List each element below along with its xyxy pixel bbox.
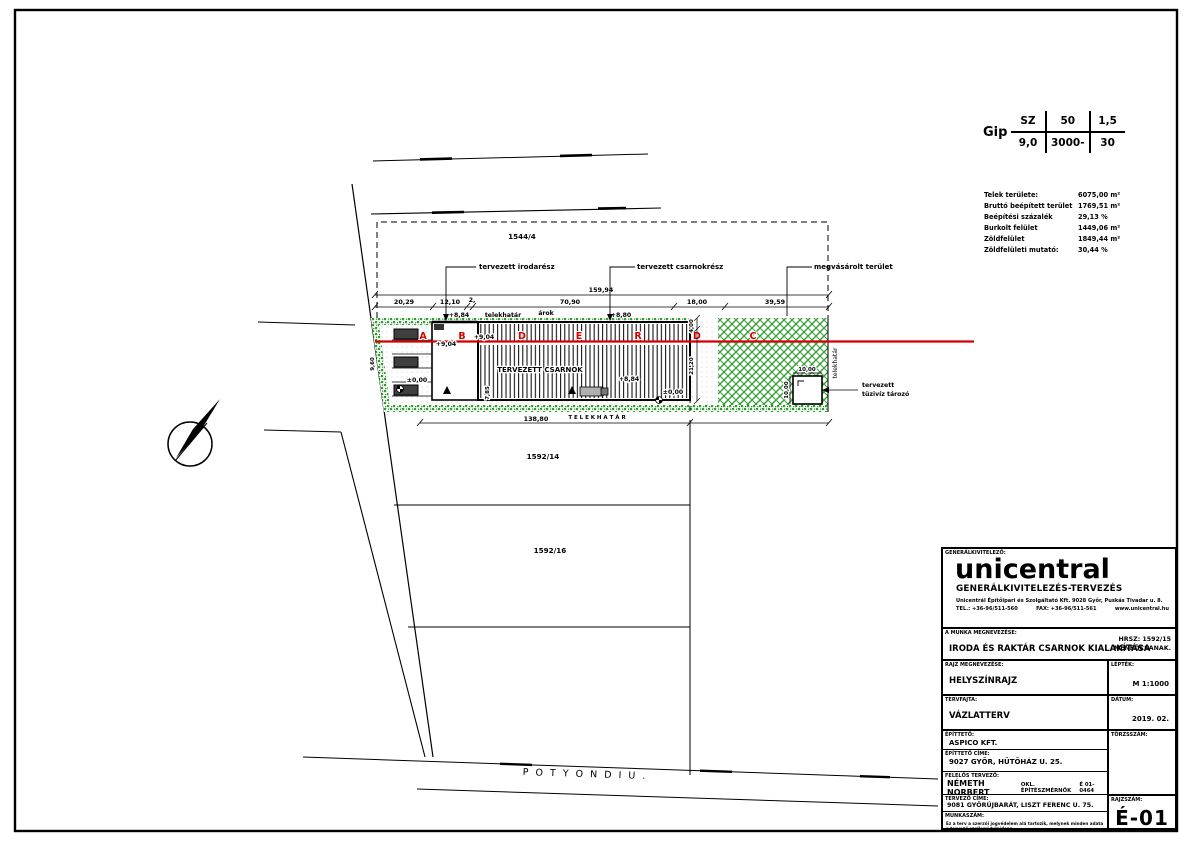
zone-letter: C <box>750 331 757 342</box>
level-label: +8,84 <box>449 312 470 319</box>
benchmark-symbol <box>397 386 404 393</box>
level-label: ±0,00 <box>663 389 684 396</box>
designer-address-label: TERVEZŐ CÍME: <box>943 795 1107 802</box>
client-label: ÉPÍTTETŐ: <box>943 731 1107 738</box>
zoning-cell: 50 <box>1046 111 1090 132</box>
client-name: ASPICO KFT. <box>943 738 1107 748</box>
zone-letter: A <box>419 331 427 342</box>
dim-label: 21,20 <box>689 357 695 375</box>
stat-row: Bruttó beépített terület1769,51 m² <box>984 201 1142 212</box>
stat-row: Zöldfelület1849,44 m² <box>984 234 1142 245</box>
company-logo: unicentral <box>943 556 1175 584</box>
parcel-ref: HRSZ: 1592/15 <box>1114 635 1171 644</box>
dim-label: 70,90 <box>560 298 581 306</box>
dim-label: 10,00 <box>798 367 816 373</box>
phase-value: VÁZLATTERV <box>943 709 1107 723</box>
dim-label: 12,10 <box>440 298 461 306</box>
registration-number-label: TÖRZSSZÁM: <box>1109 731 1175 738</box>
parcel-lines <box>394 420 690 775</box>
city-name: MÉNFŐCSANAK. <box>1114 644 1171 653</box>
ditch-label: árok <box>538 309 554 317</box>
designer-title: OKL. ÉPÍTÉSZMÉRNÖK <box>1021 782 1074 794</box>
drawing-name-label: RAJZ MEGNEVEZÉSE: <box>943 661 1107 668</box>
dim-label: 39,59 <box>765 298 786 306</box>
stat-row: Telek területe:6075,00 m² <box>984 190 1142 201</box>
fineprint-line1: Ez a terv a szerzői jogvédelem alá tarto… <box>946 821 1104 828</box>
zoning-cell: 30 <box>1090 132 1125 153</box>
zoning-code: Gip <box>983 125 1011 140</box>
stat-row: Beépítési százalék29,13 % <box>984 212 1142 223</box>
plot-boundary-label: telekhatár <box>485 311 522 319</box>
client-address-label: ÉPÍTTETŐ CÍME: <box>943 750 1107 757</box>
zoning-table: Gip SZ 50 1,5 9,0 3000- 30 <box>983 111 1125 153</box>
stat-row: Zöldfelületi mutató:30,44 % <box>984 245 1142 256</box>
dim-label: 9,60 <box>370 357 376 371</box>
designer-address: 9081 GYŐRÚJBARÁT, LISZT FERENC U. 75. <box>943 802 1107 809</box>
date-label: DÁTUM: <box>1109 696 1175 703</box>
car-symbol <box>394 357 418 367</box>
plot-boundary-caps: T E L E K H A T Á R <box>568 414 626 421</box>
zoning-cell: 9,0 <box>1011 132 1046 153</box>
company-tel: TEL.: +36-96/511-560 <box>956 606 1018 612</box>
zoning-cell: 1,5 <box>1090 111 1125 132</box>
north-road-lines <box>371 154 661 214</box>
drawing-number: É-01 <box>1109 806 1175 828</box>
date-value: 2019. 02. <box>1109 714 1175 724</box>
drawing-number-label: RAJZSZÁM: <box>1109 796 1175 803</box>
street-name: P O T Y O N D I U . <box>523 767 648 782</box>
dim-label: 159,94 <box>589 286 614 294</box>
phase-label: TERVFAJTA: <box>943 696 1107 703</box>
office-building <box>432 322 478 400</box>
company-address: Unicentrál Építőipari és Szolgáltató Kft… <box>943 594 1175 604</box>
callout-purchased: megvásárolt terület <box>814 263 893 271</box>
company-fax: FAX: +36-96/511-561 <box>1036 606 1096 612</box>
parcel-label: 1592/16 <box>534 546 567 555</box>
company-web: www.unicentral.hu <box>1115 606 1169 612</box>
dim-label: 20,29 <box>394 298 415 306</box>
dim-label: 18,00 <box>687 298 708 306</box>
callout-reservoir-line2: tüzivíz tározó <box>862 390 909 398</box>
work-number-label: MUNKASZÁM: <box>943 812 1107 819</box>
scale-value: M 1:1000 <box>1109 679 1175 689</box>
designer-label: FELELŐS TERVEZŐ: <box>943 772 1107 779</box>
plot-boundary-label-right: telekhatár <box>832 347 839 378</box>
designer-name: NÉMETH NORBERT <box>947 779 1013 794</box>
level-label: +8,84 <box>619 376 640 383</box>
title-block: GENERÁLKIVITELEZŐ: unicentral GENERÁLKIV… <box>941 547 1177 830</box>
dim-label: 7,85 <box>485 386 491 400</box>
client-address: 9027 GYŐR, HŰTŐHÁZ U. 25. <box>943 757 1107 767</box>
dim-label: 10,00 <box>784 381 790 399</box>
dim-label: 2, <box>469 296 476 304</box>
stat-row: Burkolt felület1449,06 m² <box>984 223 1142 234</box>
parcel-label: 1544/4 <box>508 232 536 241</box>
drawing-title: HELYSZÍNRAJZ <box>943 674 1107 688</box>
green-strip-bottom <box>389 405 828 412</box>
callout-office: tervezett irodarész <box>479 263 555 271</box>
site-statistics: Telek területe:6075,00 m² Bruttó beépíte… <box>984 190 1142 256</box>
dim-label: 138,80 <box>524 415 549 423</box>
west-road-lines <box>258 184 433 757</box>
company-contacts: TEL.: +36-96/511-560 FAX: +36-96/511-561… <box>943 604 1175 612</box>
zoning-cell: SZ <box>1011 111 1046 132</box>
scale-label: LÉPTÉK: <box>1109 661 1175 668</box>
company-logo-subtitle: GENERÁLKIVITELEZÉS-TERVEZÉS <box>943 584 1175 594</box>
north-compass <box>168 399 220 466</box>
callout-hall: tervezett csarnokrész <box>637 263 723 271</box>
level-label: +9,04 <box>474 334 495 341</box>
truck-symbol <box>580 387 608 396</box>
callout-reservoir-line1: tervezett <box>862 382 894 389</box>
dim-label: 4,00 <box>689 319 695 333</box>
zone-letter: D <box>518 331 526 342</box>
level-label: ±0,00 <box>407 377 428 384</box>
zone-letter: B <box>458 331 465 342</box>
zoning-cell: 3000- <box>1046 132 1090 153</box>
parcel-label: 1592/14 <box>527 452 560 461</box>
drawing-sheet: 1544/4 P O T Y O N D I U . 1592/14 1592/… <box>0 0 1191 842</box>
level-label: +8,80 <box>611 312 632 319</box>
benchmark-symbol <box>656 397 663 404</box>
level-label: +9,04 <box>436 341 457 348</box>
hall-name-label: TERVEZETT CSARNOK <box>497 366 583 374</box>
designer-registration: É 01-0464 <box>1079 782 1103 794</box>
south-street <box>303 757 938 806</box>
zone-letter: R <box>634 331 642 342</box>
callout-leaders <box>446 267 812 316</box>
zone-letter: E <box>576 331 583 342</box>
car-symbol <box>394 329 418 339</box>
